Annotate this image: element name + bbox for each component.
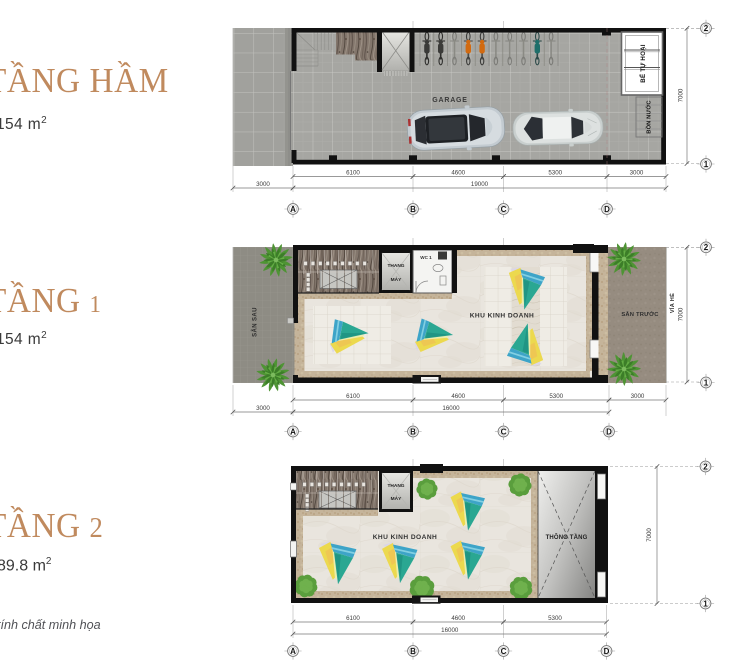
svg-text:GARAGE: GARAGE xyxy=(432,97,468,104)
svg-text:16000: 16000 xyxy=(442,405,460,412)
svg-text:2: 2 xyxy=(703,462,708,471)
svg-text:3000: 3000 xyxy=(631,393,645,400)
svg-text:SÂN TRƯỚC: SÂN TRƯỚC xyxy=(621,310,659,318)
svg-text:C: C xyxy=(501,427,507,436)
svg-text:2: 2 xyxy=(704,24,709,33)
svg-text:6100: 6100 xyxy=(346,393,360,400)
svg-text:7000: 7000 xyxy=(646,528,653,542)
svg-text:5300: 5300 xyxy=(548,170,562,177)
svg-text:D: D xyxy=(604,205,610,214)
svg-text:B: B xyxy=(410,647,416,656)
svg-text:3000: 3000 xyxy=(256,405,270,412)
svg-text:2: 2 xyxy=(704,243,709,252)
svg-text:5300: 5300 xyxy=(549,393,563,400)
svg-text:3000: 3000 xyxy=(256,181,270,188)
svg-text:THANG: THANG xyxy=(387,483,404,489)
svg-text:C: C xyxy=(501,647,507,656)
svg-text:THANG: THANG xyxy=(387,263,404,269)
svg-text:4600: 4600 xyxy=(451,170,465,177)
svg-text:4600: 4600 xyxy=(451,393,465,400)
svg-text:4600: 4600 xyxy=(451,615,465,622)
svg-text:D: D xyxy=(604,647,610,656)
svg-text:7000: 7000 xyxy=(678,88,685,102)
svg-text:KHU KINH DOANH: KHU KINH DOANH xyxy=(470,313,535,320)
svg-text:3000: 3000 xyxy=(630,170,644,177)
svg-text:A: A xyxy=(290,205,296,214)
svg-text:A: A xyxy=(290,427,296,436)
svg-text:7000: 7000 xyxy=(678,307,685,321)
svg-text:B: B xyxy=(410,427,416,436)
svg-text:BỂ TỰ HOẠI: BỂ TỰ HOẠI xyxy=(640,44,647,82)
svg-text:C: C xyxy=(501,205,507,214)
svg-text:1: 1 xyxy=(703,599,708,608)
svg-text:6100: 6100 xyxy=(346,170,360,177)
svg-text:WC 1: WC 1 xyxy=(420,255,432,260)
svg-text:16000: 16000 xyxy=(441,627,459,634)
svg-text:VỈA HÈ: VỈA HÈ xyxy=(668,293,676,313)
svg-text:D: D xyxy=(606,427,612,436)
svg-text:KHU KINH DOANH: KHU KINH DOANH xyxy=(373,534,438,541)
svg-text:B: B xyxy=(410,205,416,214)
svg-text:19000: 19000 xyxy=(471,181,489,188)
svg-text:1: 1 xyxy=(704,378,709,387)
svg-text:MÁY: MÁY xyxy=(391,276,402,283)
svg-text:6100: 6100 xyxy=(346,615,360,622)
svg-text:SÂN SAU: SÂN SAU xyxy=(252,307,259,337)
svg-text:BỒN NƯỚC: BỒN NƯỚC xyxy=(645,100,653,134)
svg-text:1: 1 xyxy=(704,160,709,169)
svg-text:A: A xyxy=(290,647,296,656)
svg-text:MÁY: MÁY xyxy=(391,495,402,502)
svg-text:THÔNG TẦNG: THÔNG TẦNG xyxy=(546,533,588,541)
svg-text:5300: 5300 xyxy=(548,615,562,622)
